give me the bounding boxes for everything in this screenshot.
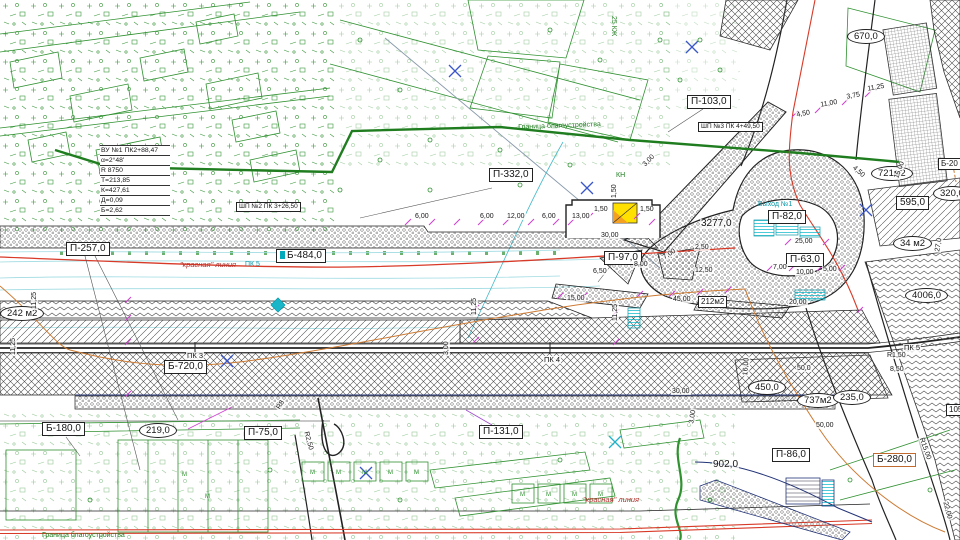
plan-label: 15,00	[566, 295, 586, 302]
plan-label: КН	[616, 171, 625, 181]
plan-label: 10,00	[795, 269, 815, 276]
site-plan-canvas: ВУ №1 ПК2+88,47α=2°48'R 8750Т=213,85К=42…	[0, 0, 960, 540]
plan-label: 30,00	[671, 388, 691, 395]
plan-label: 4006,0	[905, 288, 948, 303]
plan-linework	[0, 0, 960, 540]
plan-label: 5,00	[822, 266, 838, 273]
plan-label: Б-20	[938, 158, 960, 170]
plan-label: 3,00	[443, 340, 450, 356]
plan-label: П-75,0	[244, 426, 282, 440]
plan-label: 25,00	[794, 238, 814, 245]
plan-label: 721м2	[871, 166, 913, 181]
plan-label: 212м2	[698, 296, 727, 308]
plan-label: М	[414, 468, 419, 478]
plan-label: 11,25	[10, 337, 17, 356]
plan-label: "красная" линия	[583, 495, 639, 505]
plan-label: 25 КЖ	[608, 16, 618, 36]
plan-label: 13,00	[571, 213, 591, 220]
plan-label: 6,00	[414, 213, 430, 220]
plan-label: М	[572, 490, 577, 500]
curve-data-table: ВУ №1 ПК2+88,47α=2°48'R 8750Т=213,85К=42…	[100, 145, 170, 216]
plan-label: 11,25	[471, 297, 478, 316]
plan-label: 34 м2	[893, 236, 932, 251]
plan-label: Б-720,0	[164, 360, 207, 374]
plan-label: 670,0	[847, 29, 885, 44]
plan-label: "красная" линия	[180, 260, 236, 270]
plan-label: ПК 3	[186, 352, 204, 360]
curve-data-row: ВУ №1 ПК2+88,47	[100, 146, 170, 156]
plan-label: 450,0	[748, 380, 786, 395]
plan-label: 12,50	[694, 267, 714, 274]
plan-label: Б-280,0	[873, 453, 916, 467]
plan-label: 50,00	[815, 422, 835, 429]
plan-label: М	[598, 490, 603, 500]
plan-label: ПК 5	[245, 260, 260, 270]
plan-label: 6,50	[592, 268, 608, 275]
plan-label: П-257,0	[66, 242, 110, 256]
plan-label: М	[205, 492, 210, 502]
curve-data-row: Т=213,85	[100, 176, 170, 186]
plan-label: 8,00	[633, 261, 649, 268]
curve-data-row: α=2°48'	[100, 156, 170, 166]
plan-label: 902,0	[712, 460, 739, 470]
plan-label: 6,00	[541, 213, 557, 220]
plan-label: М	[336, 468, 341, 478]
plan-label: 6,00	[479, 213, 495, 220]
plan-label: 30,00	[600, 232, 620, 239]
plan-label: П-63,0	[786, 253, 824, 267]
plan-label: Выход №1	[758, 200, 792, 210]
plan-label: ПК 5	[903, 344, 921, 352]
plan-label: Б-180,0	[42, 422, 85, 436]
plan-label: Граница благоустройства	[42, 531, 125, 540]
plan-label: R1,50	[886, 352, 907, 359]
plan-label: 11,25	[612, 303, 619, 322]
plan-label: М	[362, 468, 367, 478]
plan-label: 8,50	[889, 366, 905, 373]
plan-label: 595,0	[896, 196, 929, 210]
plan-label: 50,0	[796, 365, 812, 372]
sidewalk-strip-bottom	[75, 396, 835, 409]
plan-label: П-131,0	[479, 425, 523, 439]
plan-label: М	[520, 490, 525, 500]
plan-label: М	[388, 468, 393, 478]
curve-data-row: Б=2,62	[100, 206, 170, 216]
plan-label: Б-484,0	[276, 249, 326, 263]
plan-label: ШП №2 ПК 3+26,50	[236, 202, 301, 212]
band-diagonal	[0, 320, 460, 343]
plan-label: П-86,0	[772, 448, 810, 462]
plan-label: 1,50	[611, 183, 618, 199]
plan-label: 12,00	[506, 213, 526, 220]
plan-label: 235,0	[833, 390, 871, 405]
plan-label: 3277,0	[700, 219, 733, 229]
plan-label: 105,0	[946, 404, 960, 416]
band-zigzag	[0, 301, 592, 318]
plan-label: 20,00	[788, 299, 808, 306]
plan-label: 1,50	[593, 206, 609, 213]
plan-label: 1,50	[639, 206, 655, 213]
plan-label: П-103,0	[687, 95, 731, 109]
plan-label: 219,0	[139, 423, 177, 438]
plan-label: ПК 4	[543, 356, 561, 364]
plan-label: 45,00	[672, 296, 692, 303]
plan-label: М	[546, 490, 551, 500]
curve-data-row: Д=0,09	[100, 196, 170, 206]
curve-data-row: К=427,61	[100, 186, 170, 196]
plan-label: 11,25	[31, 291, 38, 310]
plan-label: М	[182, 470, 187, 480]
plan-label: П-82,0	[768, 210, 806, 224]
plan-label: ШП №3 ПК 4+49,50	[698, 122, 763, 132]
plan-label: 7,00	[772, 264, 788, 271]
curve-data-row: R 8750	[100, 166, 170, 176]
plan-label: П-332,0	[489, 168, 533, 182]
plan-label: М	[310, 468, 315, 478]
plan-label: 2,50	[694, 244, 710, 251]
stairs	[786, 478, 820, 504]
